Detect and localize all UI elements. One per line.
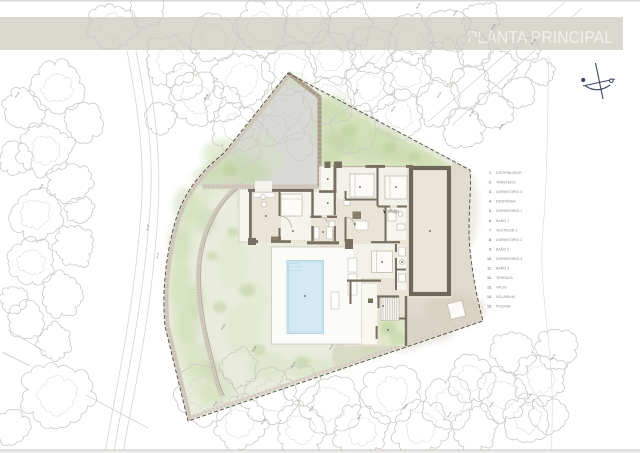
svg-text:TRASTERO: TRASTERO [496,181,516,185]
svg-text:PISCINA: PISCINA [496,305,511,309]
svg-text:DORMITORIO 1: DORMITORIO 1 [496,209,522,213]
svg-text:7.: 7. [489,228,492,232]
svg-text:TERRAZA: TERRAZA [496,276,513,280]
svg-text:12.: 12. [487,276,492,280]
svg-text:13.: 13. [487,286,492,290]
svg-text:DORMITORIO 2: DORMITORIO 2 [496,238,522,242]
svg-text:DISTRIBUIDOR: DISTRIBUIDOR [496,171,522,175]
svg-text:BAÑO 3: BAÑO 3 [496,266,509,271]
svg-text:VACIO: VACIO [496,286,507,290]
svg-text:2.: 2. [489,181,492,185]
svg-text:BAÑO 2: BAÑO 2 [496,246,509,251]
svg-text:BAÑO 1: BAÑO 1 [496,218,509,223]
svg-text:1.: 1. [489,171,492,175]
svg-text:6.: 6. [489,219,492,223]
svg-text:15.: 15. [487,305,492,309]
svg-text:10.: 10. [487,257,492,261]
svg-text:5.: 5. [489,209,492,213]
svg-text:11.: 11. [487,267,492,271]
svg-text:14.: 14. [487,295,492,299]
svg-text:SOLARIUM: SOLARIUM [496,295,515,299]
svg-text:VESTIDOR 1: VESTIDOR 1 [496,228,517,232]
svg-text:DORMITORIO 4: DORMITORIO 4 [496,190,522,194]
svg-text:8.: 8. [489,238,492,242]
svg-text:DORMITORIO 3: DORMITORIO 3 [496,257,522,261]
svg-text:9.: 9. [489,247,492,251]
svg-text:WD BBQ: WD BBQ [388,210,400,214]
svg-text:3.: 3. [489,190,492,194]
svg-text:4.: 4. [489,200,492,204]
svg-text:DESPENSA: DESPENSA [496,200,516,204]
